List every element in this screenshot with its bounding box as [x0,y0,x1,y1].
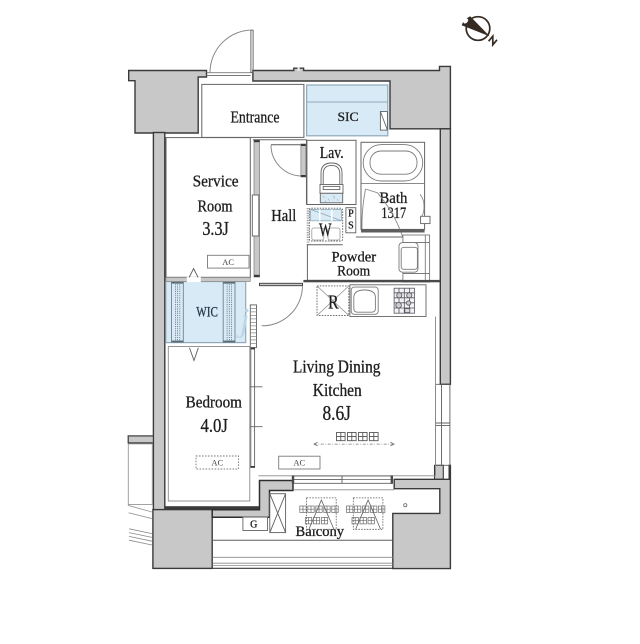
svg-text:1317: 1317 [381,205,406,222]
svg-text:Bedroom: Bedroom [186,393,242,412]
svg-text:Living Dining: Living Dining [293,357,381,377]
svg-text:SIC: SIC [338,109,359,124]
svg-text:Room: Room [198,196,233,215]
svg-text:8.6J: 8.6J [322,401,351,425]
svg-text:R: R [328,292,339,314]
svg-text:AC: AC [211,458,223,468]
svg-text:W: W [319,220,332,241]
svg-text:P: P [348,208,354,219]
svg-text:Entrance: Entrance [231,108,280,127]
svg-text:G: G [250,520,257,531]
svg-text:Room: Room [337,264,370,280]
svg-text:AC: AC [293,458,305,468]
svg-text:AC: AC [222,257,234,267]
svg-text:WIC: WIC [196,305,218,321]
svg-text:Hall: Hall [271,206,296,225]
svg-text:Lav.: Lav. [320,143,344,162]
svg-text:3.3J: 3.3J [202,218,229,240]
svg-text:S: S [348,220,354,231]
svg-text:4.0J: 4.0J [201,415,228,437]
svg-text:Service: Service [193,171,239,190]
svg-text:Kitchen: Kitchen [313,380,362,400]
